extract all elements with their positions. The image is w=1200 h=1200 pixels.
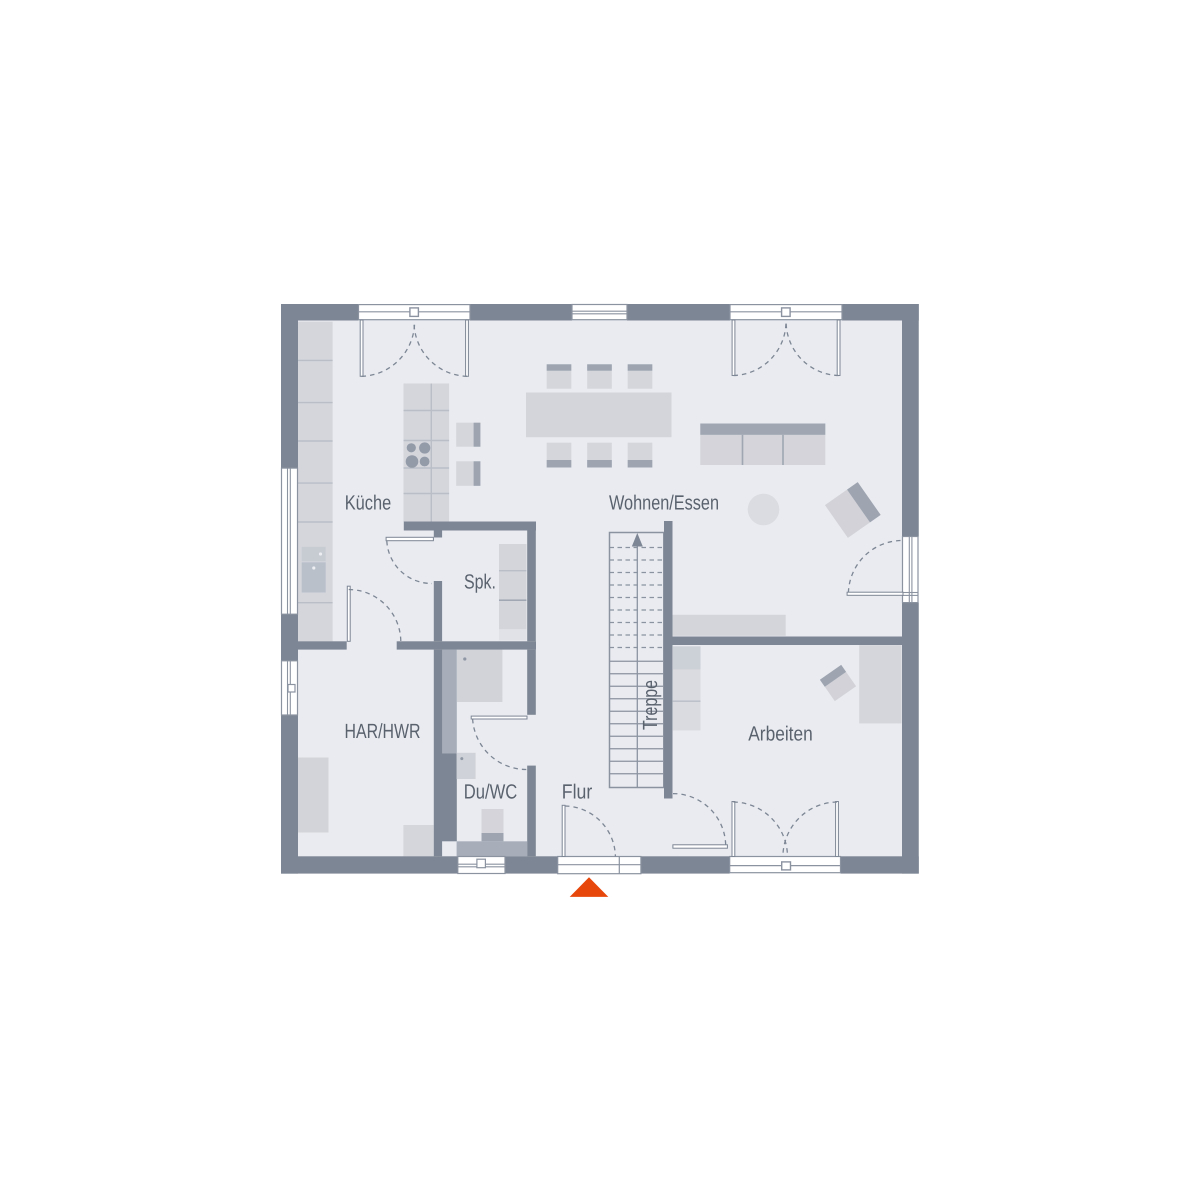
svg-text:Arbeiten: Arbeiten [748, 723, 813, 746]
svg-text:Flur: Flur [562, 781, 593, 804]
svg-text:Treppe: Treppe [639, 680, 662, 730]
svg-text:Du/WC: Du/WC [464, 781, 518, 804]
svg-text:Wohnen/Essen: Wohnen/Essen [609, 492, 719, 515]
svg-text:Küche: Küche [345, 492, 392, 515]
svg-text:HAR/HWR: HAR/HWR [345, 720, 421, 743]
svg-text:Spk.: Spk. [464, 571, 496, 594]
